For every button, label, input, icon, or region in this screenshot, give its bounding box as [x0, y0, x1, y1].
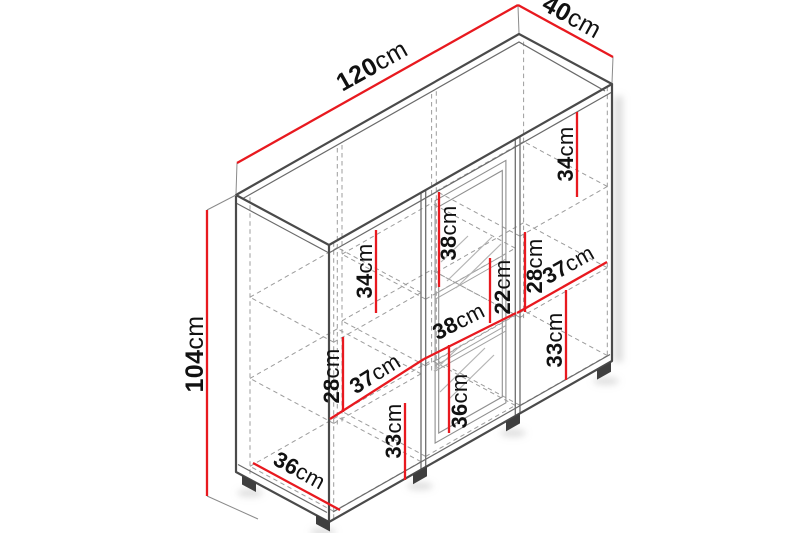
dim-label-middle-bottom-compartment: 36cm — [447, 373, 472, 428]
dim-label-middle-top-compartment: 38cm — [436, 205, 461, 260]
dim-label-right-bottom-compartment: 33cm — [542, 312, 567, 367]
diagram-canvas: 120cm 40cm 104cm 34cm 38cm 34cm 28cm 22c… — [0, 0, 800, 533]
dim-label-middle-middle-compartment: 22cm — [490, 259, 515, 314]
dim-label-left-top-compartment: 34cm — [352, 243, 377, 298]
dim-label-left-bottom-compartment: 33cm — [381, 403, 406, 458]
dim-label-overall-height: 104cm — [181, 315, 209, 392]
dim-label-left-middle-compartment: 28cm — [319, 348, 344, 403]
furniture-dimension-diagram: 120cm 40cm 104cm 34cm 38cm 34cm 28cm 22c… — [0, 0, 800, 533]
dim-label-right-top-compartment: 34cm — [553, 126, 578, 181]
